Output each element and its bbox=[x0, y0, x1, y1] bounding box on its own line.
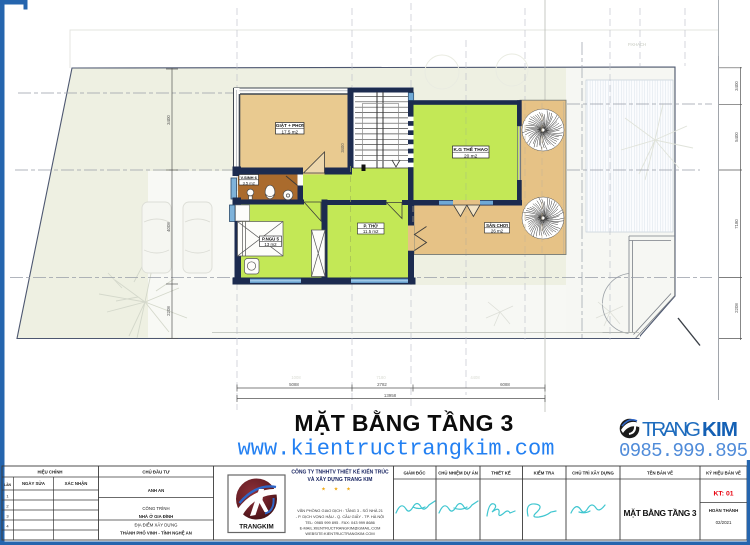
svg-text:VÀ XÂY DỰNG TRANG KIM: VÀ XÂY DỰNG TRANG KIM bbox=[308, 476, 373, 483]
svg-text:13 m2: 13 m2 bbox=[264, 242, 277, 247]
svg-text:2782: 2782 bbox=[377, 382, 387, 387]
svg-text:2208: 2208 bbox=[166, 306, 171, 316]
svg-text:3400: 3400 bbox=[340, 143, 345, 153]
svg-text:KIỂM TRA: KIỂM TRA bbox=[534, 471, 555, 476]
svg-text:WEBSITE:KIENTRUCTRANGKIM.COM: WEBSITE:KIENTRUCTRANGKIM.COM bbox=[305, 531, 374, 536]
svg-text:E-MAIL:KIENTRUCTRANGKIM@GMAIL.: E-MAIL:KIENTRUCTRANGKIM@GMAIL.COM bbox=[300, 526, 381, 531]
svg-text:3400: 3400 bbox=[734, 81, 739, 91]
svg-text:TEL: 0985 999 895 . FAX: 043 9: TEL: 0985 999 895 . FAX: 043 999 8686 bbox=[305, 520, 375, 525]
svg-text:GIẶT + PHƠI: GIẶT + PHƠI bbox=[276, 122, 304, 128]
svg-text:KT: 01: KT: 01 bbox=[713, 491, 733, 498]
svg-text:P.NGỦ 5: P.NGỦ 5 bbox=[262, 236, 280, 241]
svg-text:KIM: KIM bbox=[702, 418, 738, 441]
svg-text:P. THỜ: P. THỜ bbox=[363, 224, 378, 229]
svg-text:6088: 6088 bbox=[500, 382, 510, 387]
svg-text:13958: 13958 bbox=[384, 393, 397, 398]
svg-text:VĂN PHÒNG GIAO DỊCH : TẦNG 3 -: VĂN PHÒNG GIAO DỊCH : TẦNG 3 - SỐ NHÀ 21 bbox=[297, 508, 383, 513]
svg-text:V.SINH 6: V.SINH 6 bbox=[241, 175, 258, 180]
svg-text:7180: 7180 bbox=[734, 219, 739, 229]
svg-text:02/2021: 02/2021 bbox=[716, 520, 732, 525]
svg-text:4008: 4008 bbox=[166, 222, 171, 232]
svg-text:CHỦ NHIỆM DỰ ÁN: CHỦ NHIỆM DỰ ÁN bbox=[438, 471, 478, 476]
svg-text:4: 4 bbox=[6, 524, 9, 529]
svg-text:1008: 1008 bbox=[291, 375, 301, 380]
svg-text:3.5 m2: 3.5 m2 bbox=[243, 180, 256, 185]
svg-text:MẶT BẰNG TẦNG 3: MẶT BẰNG TẦNG 3 bbox=[624, 508, 697, 518]
svg-text:3400: 3400 bbox=[166, 115, 171, 125]
svg-text:K.G THỂ THAO: K.G THỂ THAO bbox=[454, 146, 489, 153]
svg-text:HOÀN THÀNH: HOÀN THÀNH bbox=[709, 508, 739, 513]
svg-text:20 m2: 20 m2 bbox=[464, 153, 478, 159]
svg-text:SÂN CHƠI: SÂN CHƠI bbox=[486, 223, 508, 228]
svg-text:KÝ HIỆU BẢN VẼ: KÝ HIỆU BẢN VẼ bbox=[706, 471, 741, 476]
svg-text:7180: 7180 bbox=[376, 375, 386, 380]
svg-text:17.5 m2: 17.5 m2 bbox=[281, 129, 298, 134]
svg-text:★★★: ★★★ bbox=[321, 487, 358, 493]
svg-text:5400: 5400 bbox=[734, 132, 739, 142]
svg-text:0985.999.895: 0985.999.895 bbox=[619, 440, 748, 462]
svg-text:1: 1 bbox=[6, 494, 9, 499]
svg-text:26 m2: 26 m2 bbox=[491, 228, 504, 233]
svg-text:ĐỊA ĐIỂM XÂY DỰNG: ĐỊA ĐIỂM XÂY DỰNG bbox=[135, 523, 179, 528]
svg-text:THIẾT KẾ: THIẾT KẾ bbox=[491, 471, 511, 476]
svg-text:2208: 2208 bbox=[734, 303, 739, 313]
svg-text:THÀNH PHỐ VINH - TỈNH NGHỆ AN: THÀNH PHỐ VINH - TỈNH NGHỆ AN bbox=[120, 531, 192, 536]
svg-text:www.kientructrangkim.com: www.kientructrangkim.com bbox=[238, 437, 555, 462]
svg-text:TÊN BẢN VẼ: TÊN BẢN VẼ bbox=[647, 471, 673, 476]
svg-text:5088: 5088 bbox=[289, 382, 299, 387]
svg-text:11.5 m2: 11.5 m2 bbox=[363, 229, 379, 234]
svg-text:CÔNG TY TNHHTV THIẾT KẾ KIẾN T: CÔNG TY TNHHTV THIẾT KẾ KIẾN TRÚC bbox=[291, 468, 389, 476]
svg-text:TRANG: TRANG bbox=[642, 418, 701, 441]
svg-text:4408: 4408 bbox=[470, 375, 480, 380]
svg-text:P.KHACH: P.KHACH bbox=[628, 42, 646, 47]
svg-text:CHỦ ĐẦU TƯ: CHỦ ĐẦU TƯ bbox=[142, 470, 170, 475]
svg-text:2: 2 bbox=[6, 504, 9, 509]
svg-text:NGÀY SỬA: NGÀY SỬA bbox=[22, 481, 45, 486]
svg-text:- P. DỊCH VỌNG HẬU - Q. CẦU GI: - P. DỊCH VỌNG HẬU - Q. CẦU GIẤY - TP. H… bbox=[296, 514, 385, 519]
svg-text:NHÀ Ở GIA ĐÌNH: NHÀ Ở GIA ĐÌNH bbox=[139, 514, 174, 519]
svg-text:MẶT BẰNG TẦNG 3: MẶT BẰNG TẦNG 3 bbox=[294, 409, 513, 436]
svg-text:CHỦ TRÌ XÂY DỰNG: CHỦ TRÌ XÂY DỰNG bbox=[572, 471, 614, 476]
svg-text:XÁC NHẬN: XÁC NHẬN bbox=[65, 481, 88, 486]
svg-text:TRANGKIM: TRANGKIM bbox=[239, 524, 273, 531]
svg-text:GIÁM ĐỐC: GIÁM ĐỐC bbox=[404, 471, 426, 476]
svg-text:3: 3 bbox=[6, 514, 9, 519]
svg-text:CÔNG TRÌNH: CÔNG TRÌNH bbox=[142, 506, 169, 511]
svg-text:LẦN: LẦN bbox=[4, 483, 12, 487]
svg-text:ANH AN: ANH AN bbox=[148, 488, 165, 493]
svg-text:HIỆU CHỈNH: HIỆU CHỈNH bbox=[37, 470, 62, 475]
